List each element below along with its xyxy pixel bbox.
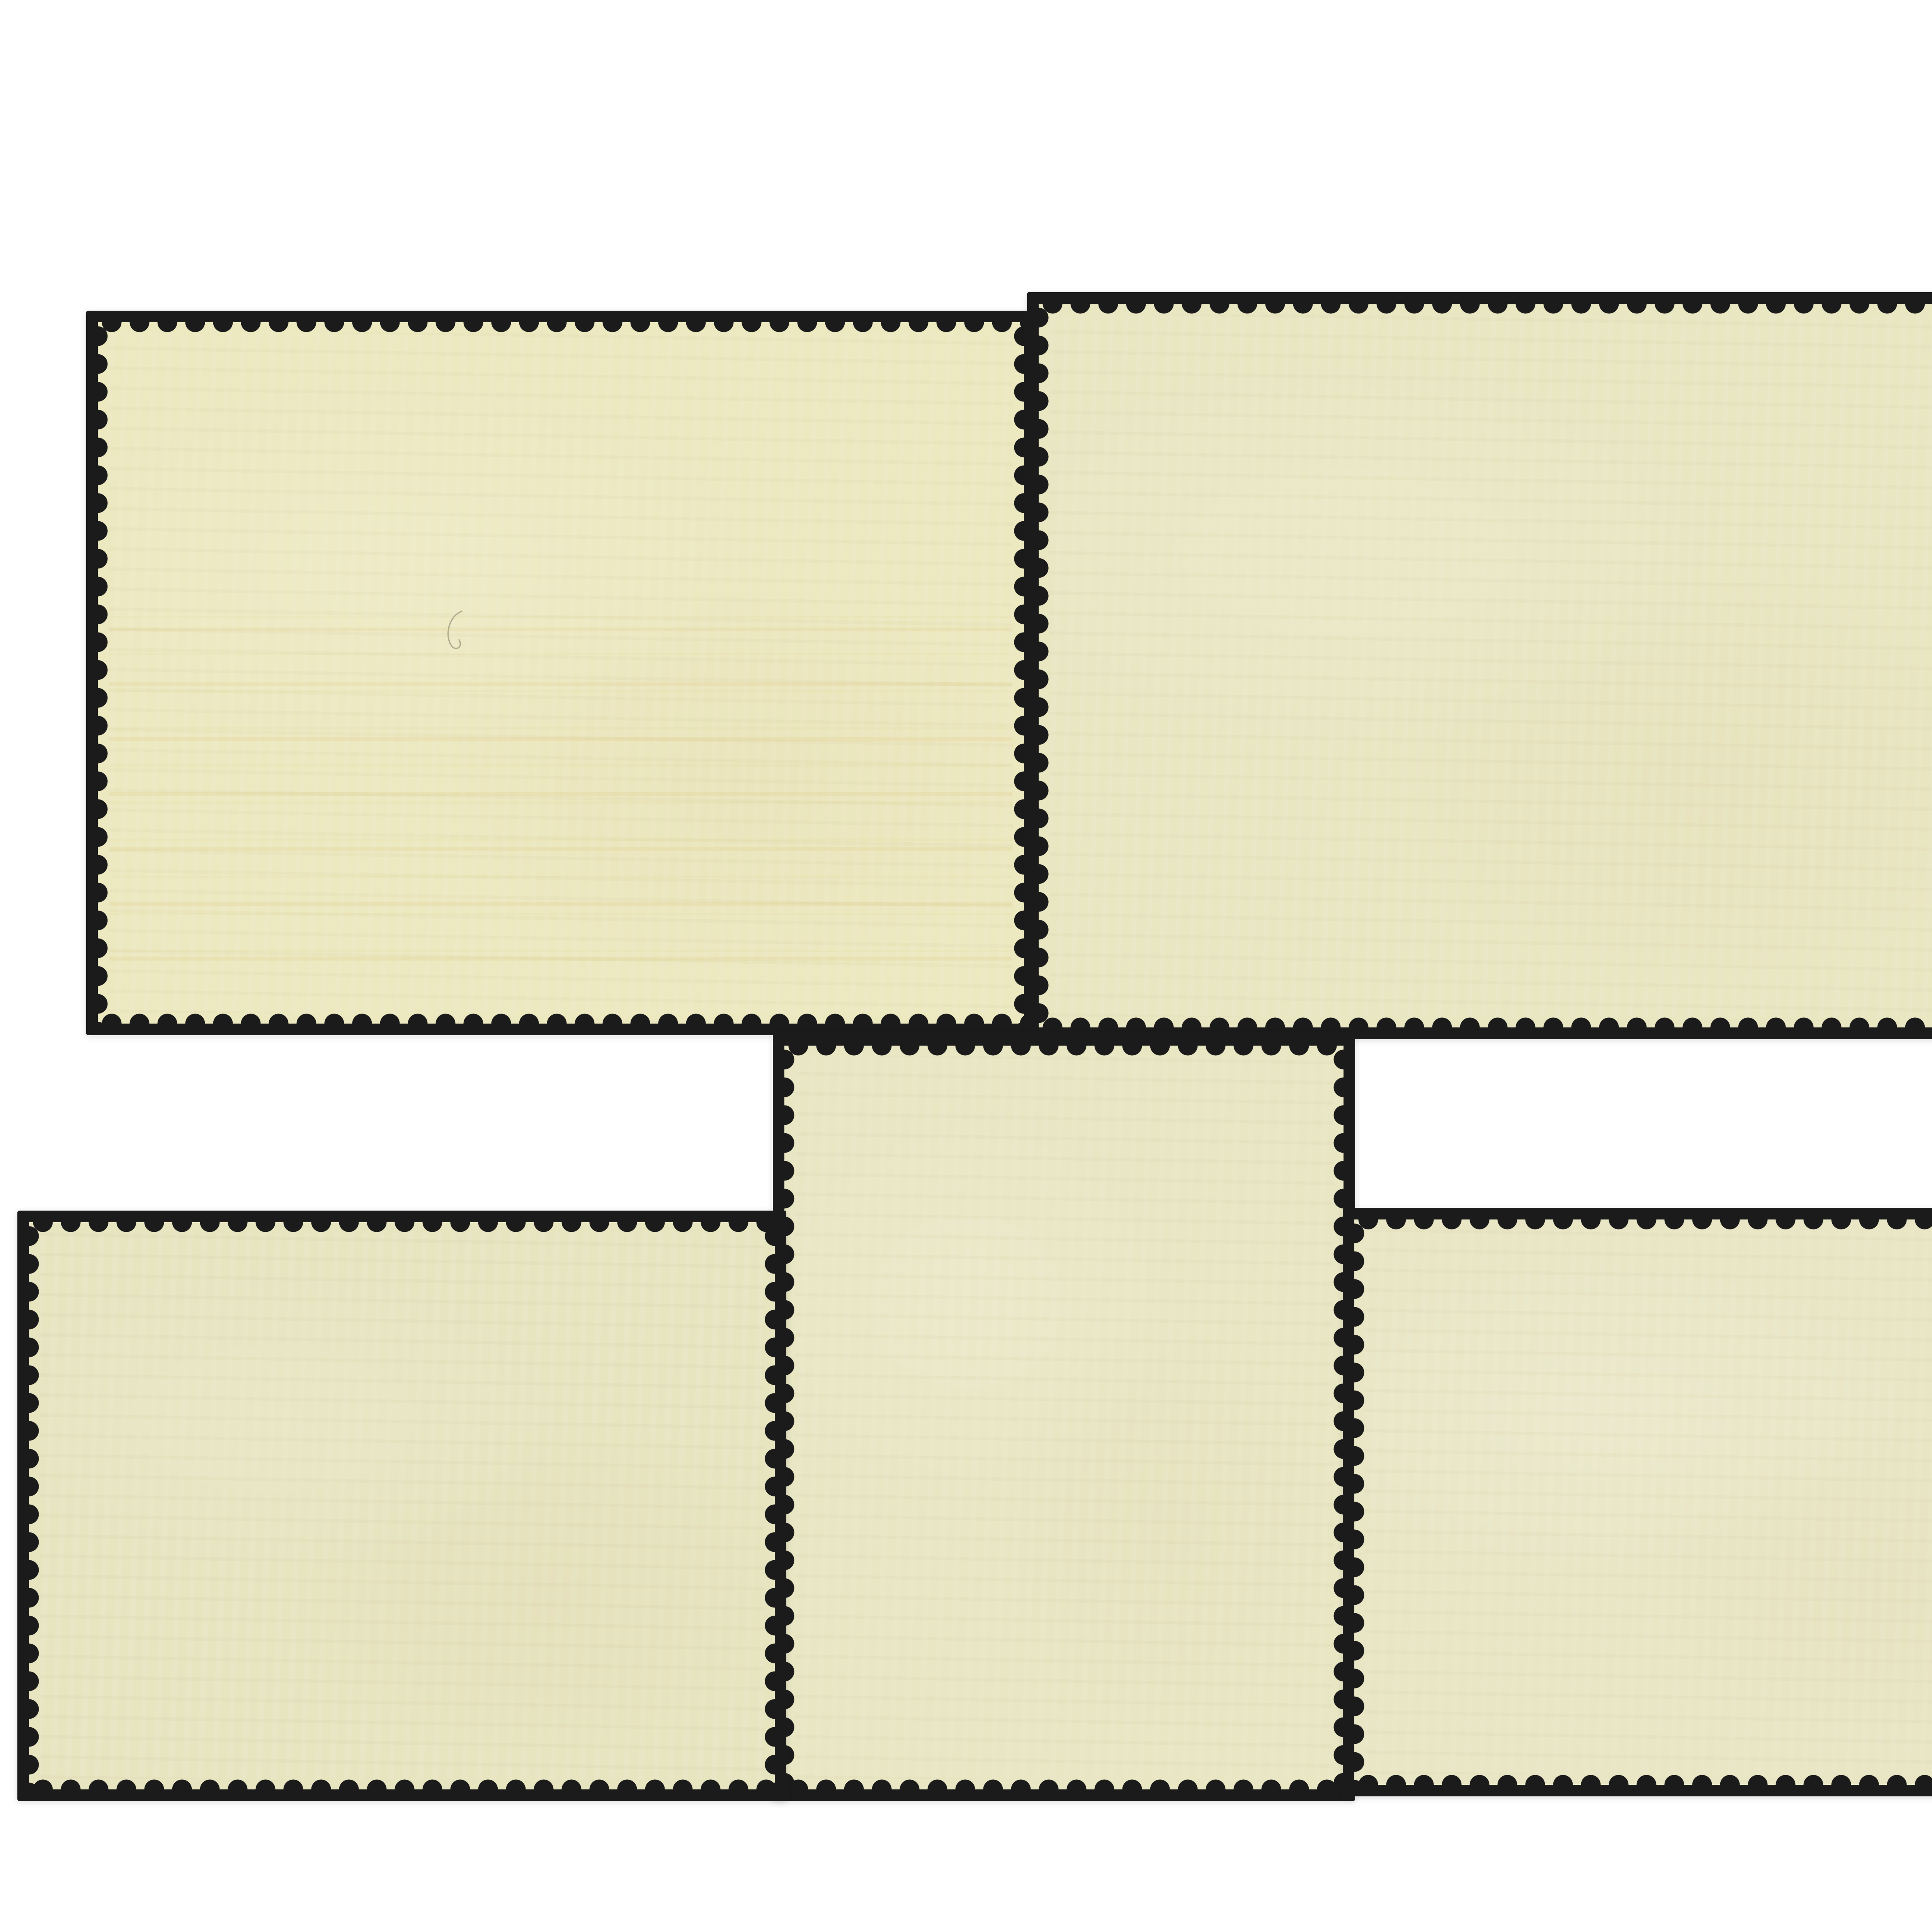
stamp-scan xyxy=(0,0,1932,1932)
pencil-mark xyxy=(442,607,469,654)
stamp-back-5-paper xyxy=(1354,1219,1932,1785)
stamp-back-1 xyxy=(86,311,1036,1035)
stamp-back-4-paper xyxy=(29,1222,775,1789)
stamp-back-1-paper xyxy=(98,322,1024,1024)
stamp-back-2 xyxy=(1027,292,1932,1039)
stamp-back-3-paper xyxy=(784,1046,1344,1789)
stamp-back-3 xyxy=(773,1034,1355,1801)
stamp-back-4 xyxy=(17,1211,786,1801)
stamp-back-5 xyxy=(1343,1208,1932,1796)
stamp-back-2-paper xyxy=(1039,304,1932,1027)
